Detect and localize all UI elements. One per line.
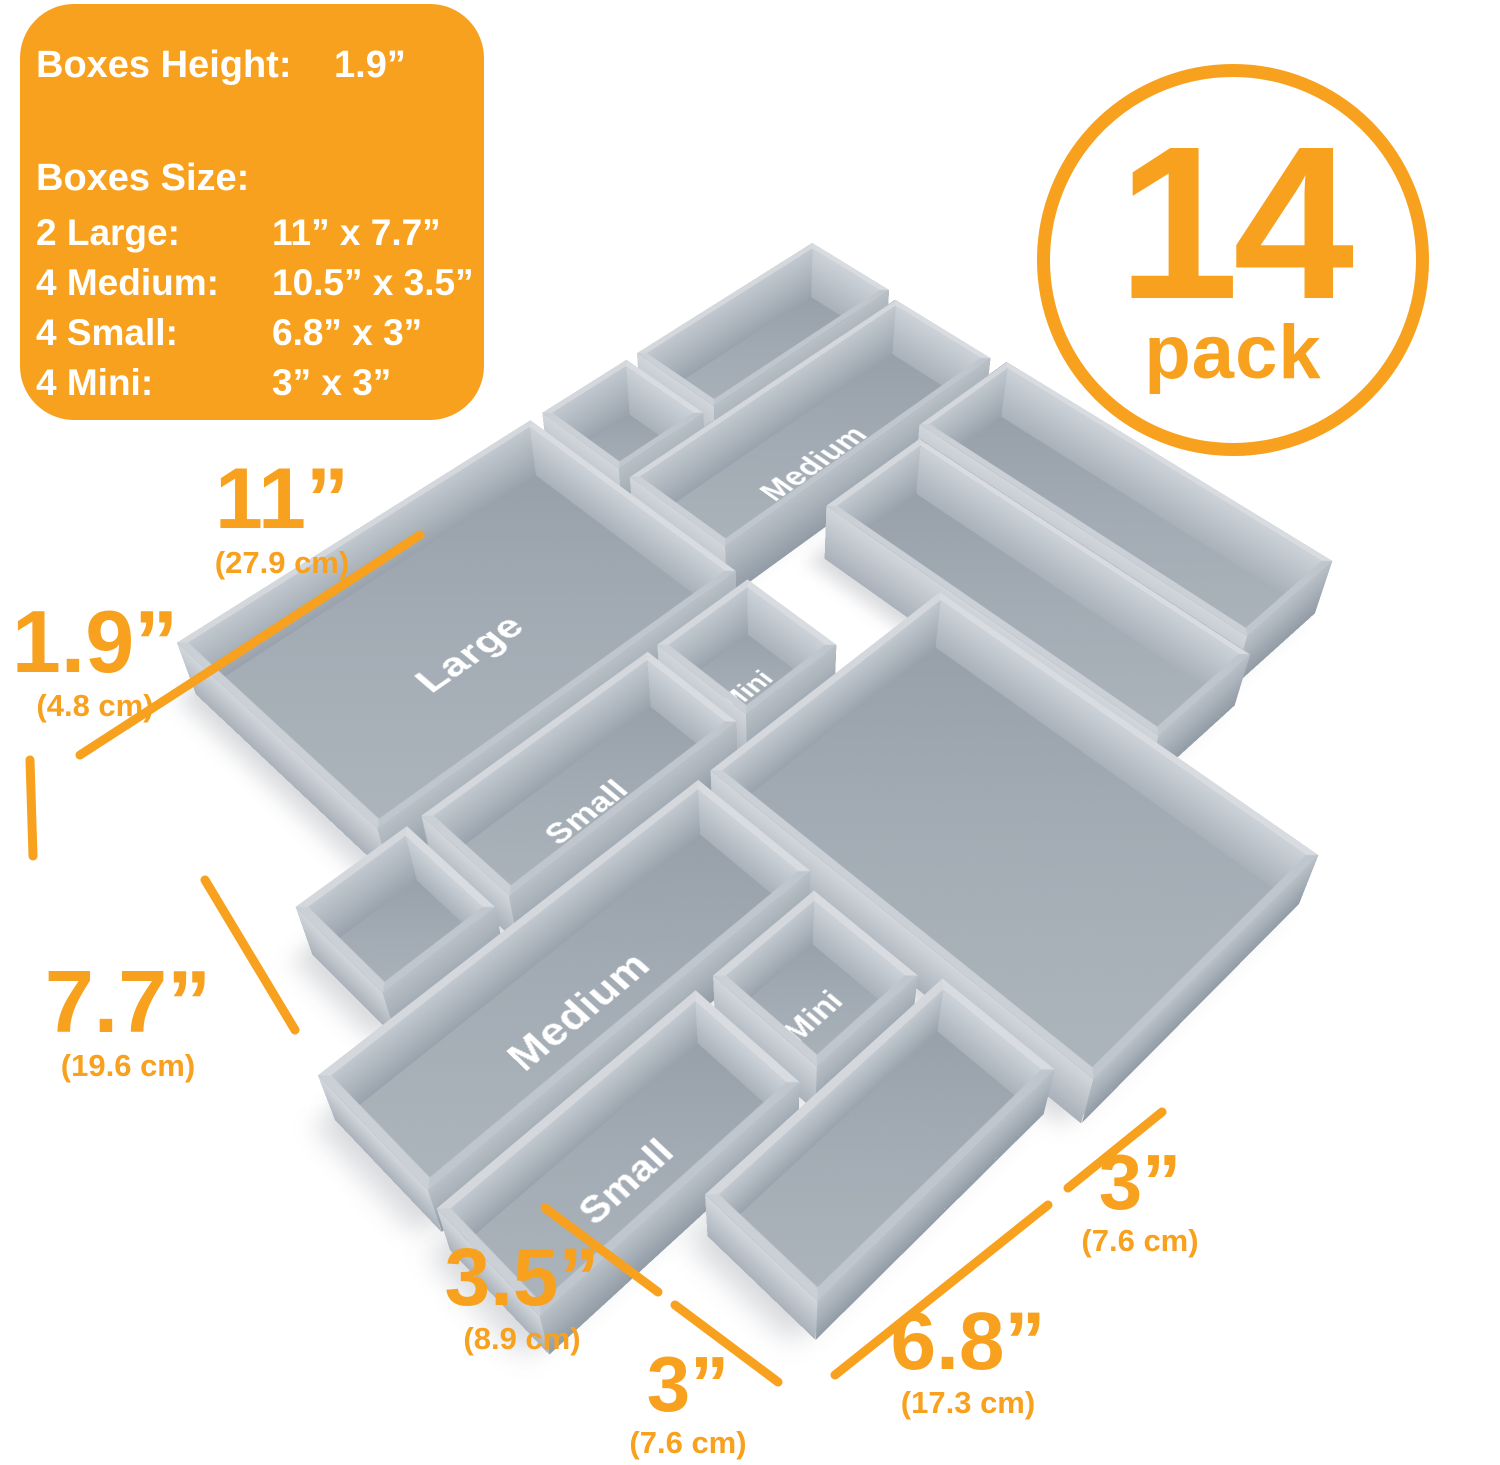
dimension-value: 1.9” [12, 600, 178, 684]
boxes-height-row: Boxes Height: 1.9” [36, 44, 484, 86]
dimension-cm-value: (8.9 cm) [445, 1321, 600, 1357]
spec-row-value: 6.8” x 3” [272, 308, 484, 358]
dimension-cm-value: (17.3 cm) [891, 1385, 1046, 1421]
dimension-cm-value: (19.6 cm) [45, 1048, 211, 1084]
dimension-value: 3” [629, 1347, 746, 1421]
dimension-value: 11” [215, 459, 349, 541]
dimension-small-length-6-8in: 6.8”(17.3 cm) [891, 1303, 1046, 1421]
dimension-medium-width-3-5in: 3.5”(8.9 cm) [445, 1239, 600, 1357]
dimension-value: 6.8” [891, 1303, 1046, 1381]
dimension-cm-value: (27.9 cm) [215, 545, 349, 581]
spec-row-value: 3” x 3” [272, 358, 484, 408]
spec-row-large: 2 Large: 11” x 7.7” [36, 208, 484, 258]
pack-count-unit: pack [1144, 315, 1321, 391]
drawer-organizer-product-image: Boxes Height: 1.9” Boxes Size: 2 Large: … [0, 0, 1500, 1465]
spec-row-label: 2 Large: [36, 208, 272, 258]
spec-row-label: 4 Small: [36, 308, 272, 358]
dimension-large-length-11in: 11”(27.9 cm) [215, 459, 349, 581]
dimension-mini-width-3in-right: 3”(7.6 cm) [1081, 1145, 1198, 1259]
spec-row-label: 4 Medium: [36, 258, 272, 308]
dimension-value: 3.5” [445, 1239, 600, 1317]
pack-count-badge: 14 pack [1037, 64, 1429, 456]
dimension-cm-value: (4.8 cm) [12, 688, 178, 724]
dimension-value: 7.7” [45, 960, 211, 1044]
spec-panel: Boxes Height: 1.9” Boxes Size: 2 Large: … [20, 4, 484, 420]
spec-row-mini: 4 Mini: 3” x 3” [36, 358, 484, 408]
spec-row-small: 4 Small: 6.8” x 3” [36, 308, 484, 358]
dimension-boxes-height-1-9in: 1.9”(4.8 cm) [12, 600, 178, 724]
boxes-height-value: 1.9” [334, 44, 484, 86]
dimension-value: 3” [1081, 1145, 1198, 1219]
boxes-size-heading: Boxes Size: [36, 156, 484, 200]
spec-row-value: 10.5” x 3.5” [272, 258, 484, 308]
pack-count-number: 14 [1118, 135, 1348, 314]
spec-row-label: 4 Mini: [36, 358, 272, 408]
spec-row-medium: 4 Medium: 10.5” x 3.5” [36, 258, 484, 308]
dimension-mini-width-3in: 3”(7.6 cm) [629, 1347, 746, 1461]
dimension-cm-value: (7.6 cm) [629, 1425, 746, 1461]
spec-row-value: 11” x 7.7” [272, 208, 484, 258]
dimension-large-width-7-7in: 7.7”(19.6 cm) [45, 960, 211, 1084]
boxes-height-label: Boxes Height: [36, 44, 334, 86]
dimension-cm-value: (7.6 cm) [1081, 1223, 1198, 1259]
